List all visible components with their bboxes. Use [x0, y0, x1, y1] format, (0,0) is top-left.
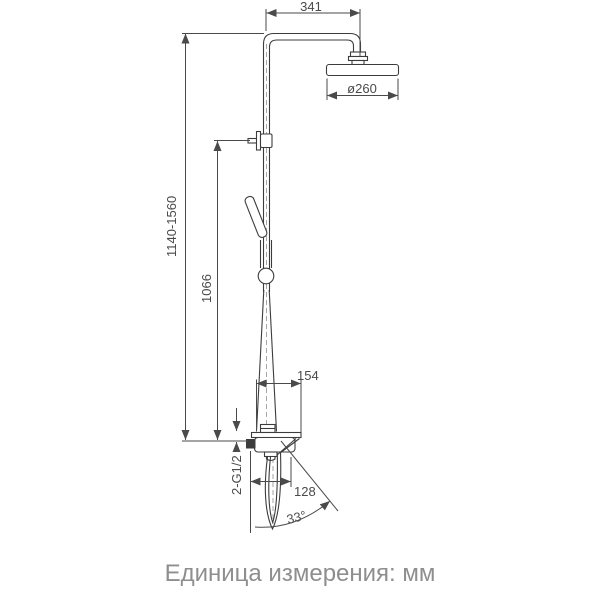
label-head-diameter: ø260: [347, 81, 377, 96]
dim-spout-reach: [251, 451, 292, 533]
lower-column-right-edge: [269, 290, 276, 432]
shower-dimension-drawing: 341 ø260 1140-1560 1066 154 128 2-G1/2 3…: [0, 0, 600, 600]
rain-shower-head: [327, 65, 399, 76]
shower-hose-inner: [269, 453, 278, 523]
dim-rail-height: [214, 141, 250, 441]
spout-nub: [265, 452, 278, 457]
label-column-height: 1140-1560: [164, 196, 179, 257]
head-connector-nut: [349, 52, 368, 65]
shower-column-outline: [244, 34, 399, 530]
label-shelf-depth: 154: [297, 368, 319, 383]
holder-lock-knob: [258, 268, 274, 284]
label-rail-height: 1066: [199, 274, 214, 303]
soap-shelf: [252, 433, 302, 438]
units-caption: Единица измерения: мм: [165, 560, 436, 587]
dim-arm-offset: [266, 9, 360, 56]
label-spout-reach: 128: [294, 484, 316, 499]
shower-arm-inner-edge: [270, 40, 354, 292]
lower-column-left-edge: [257, 290, 264, 432]
label-spout-angle: 33°: [285, 508, 308, 527]
slide-rail-knob: [248, 132, 272, 151]
drawing-page: 341 ø260 1140-1560 1066 154 128 2-G1/2 3…: [0, 0, 600, 600]
label-arm-offset: 341: [300, 0, 322, 14]
label-inlet-thread: 2-G1/2: [229, 455, 244, 495]
dim-column-height: [182, 34, 264, 442]
